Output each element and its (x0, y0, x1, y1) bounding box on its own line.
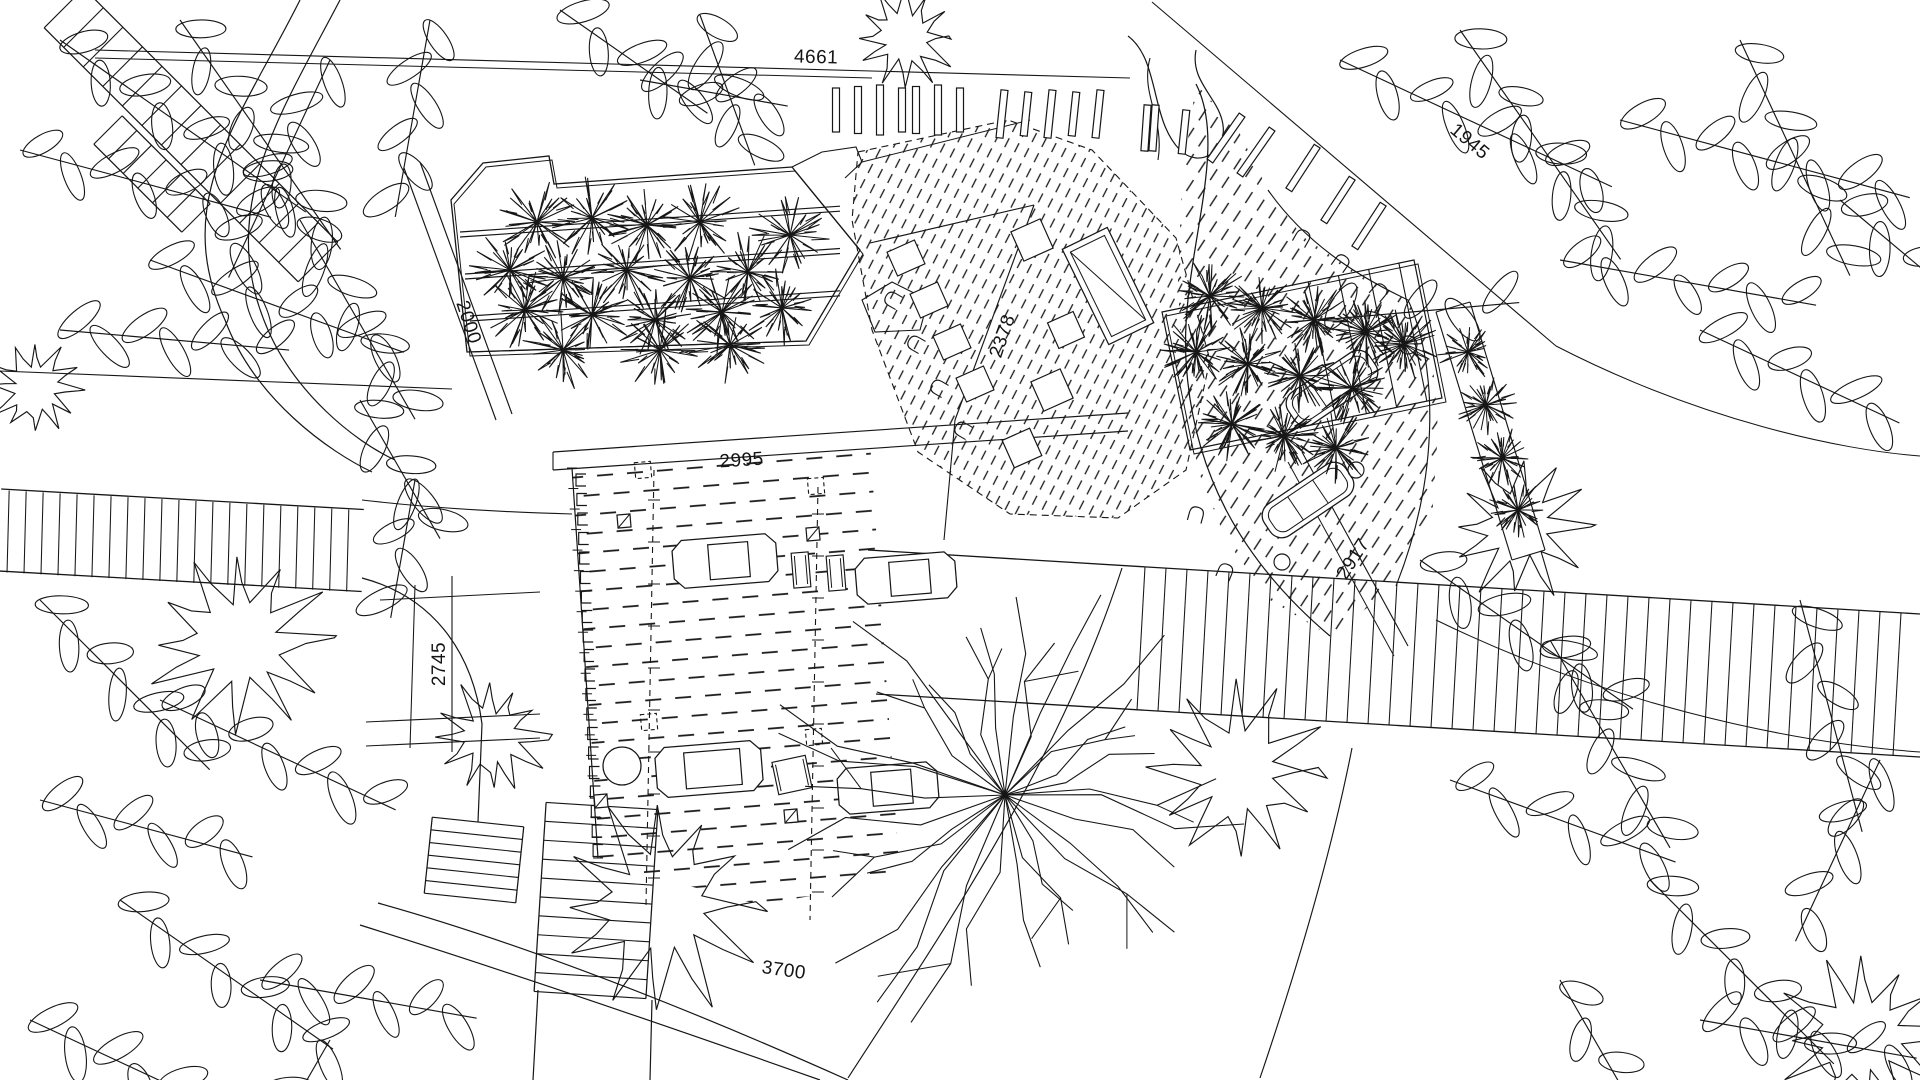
dimension-label-2995: 2995 (719, 449, 765, 473)
dimension-label-4661: 4661 (794, 46, 839, 68)
dimension-label-2745: 2745 (429, 642, 450, 686)
site-plan-canvas: 4661 1945 2378 2000 2995 2745 2917 3700 (0, 0, 1920, 1080)
left-walkway (0, 489, 364, 592)
activity-zone (852, 120, 1210, 518)
central-timber-deck (567, 441, 900, 920)
landscape-site-plan: 4661 1945 2378 2000 2995 2745 2917 3700 (0, 0, 1920, 1080)
dimension-label-2000: 2000 (451, 298, 485, 347)
dimension-label-3700: 3700 (760, 957, 807, 984)
